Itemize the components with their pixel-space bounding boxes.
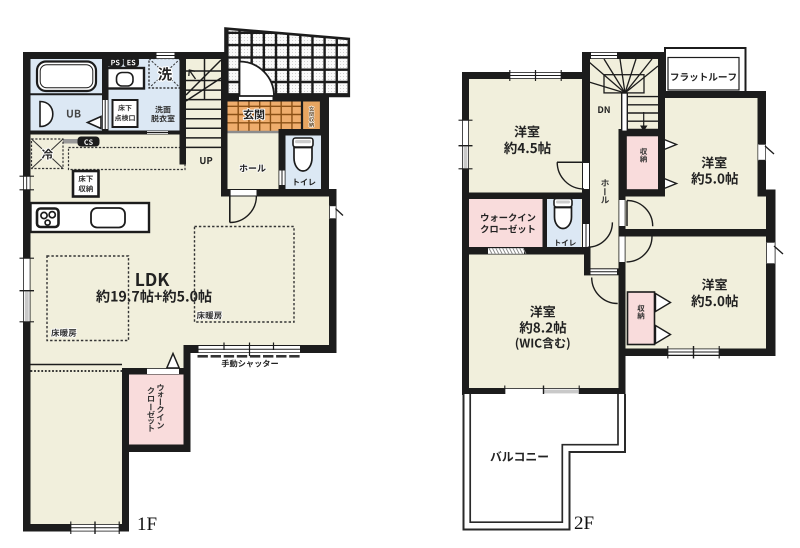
svg-text:2F: 2F — [574, 513, 594, 534]
svg-text:1F: 1F — [137, 514, 157, 535]
